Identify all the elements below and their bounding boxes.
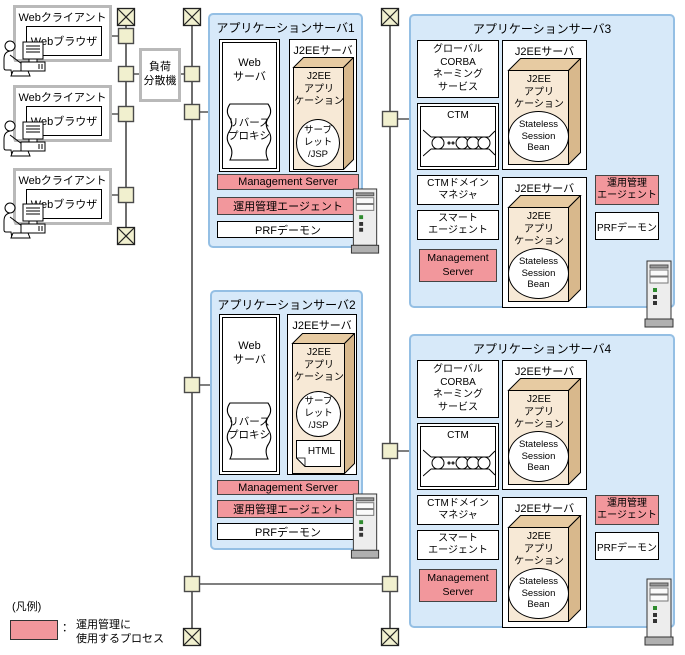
html-label: HTML: [302, 446, 341, 457]
ops-agent-box: 運用管理 エージェント: [595, 495, 659, 525]
html-document-icon: HTML: [296, 440, 341, 467]
j2ee-application-label: J2EE アプリ ケーション: [509, 394, 569, 432]
server-tower-icon: [350, 493, 382, 561]
web-client-label: Webクライアント: [16, 172, 109, 188]
global-corba-naming-box: グローバル CORBA ネーミング サービス: [417, 360, 499, 418]
stateless-session-bean-ellipse: Stateless Session Bean: [508, 568, 569, 619]
j2ee-server-box: J2EEサーバ J2EE アプリ ケーション Stateless Session…: [502, 177, 587, 308]
j2ee-application-label: J2EE アプリ ケーション: [294, 71, 344, 109]
web-server-label: Web サーバ: [223, 57, 276, 85]
server-tower-icon: [644, 577, 676, 649]
smart-agent-box: スマート エージェント: [417, 210, 499, 240]
j2ee-application-label: J2EE アプリ ケーション: [509, 211, 569, 249]
j2ee-server-box: J2EEサーバ J2EE アプリ ケーション サーブ レット /JSP: [289, 39, 357, 172]
server-tower-icon: [350, 188, 382, 256]
smart-agent-box: スマート エージェント: [417, 530, 499, 560]
ops-agent-bar: 運用管理エージェント: [217, 197, 359, 215]
j2ee-application-label: J2EE アプリ ケーション: [509, 74, 569, 112]
prf-daemon-box: PRFデーモン: [595, 532, 659, 560]
app-server-4-title: アプリケーションサーバ4: [411, 340, 673, 357]
management-server-bar: Management Server: [217, 174, 359, 190]
j2ee-server-label: J2EEサーバ: [503, 180, 586, 196]
j2ee-server-box: J2EEサーバ J2EE アプリ ケーション Stateless Session…: [502, 360, 587, 490]
app-server-4: アプリケーションサーバ4 グローバル CORBA ネーミング サービス CTM …: [409, 334, 675, 628]
architecture-diagram: Webクライアント Webブラウザ Webクライアント Webブラウザ Webク…: [0, 0, 685, 655]
reverse-proxy-plaque-shape: リバース プロキシ: [223, 402, 275, 460]
j2ee-application-3d-box: J2EE アプリ ケーション Stateless Session Bean: [507, 515, 582, 622]
ctm-domain-manager-box: CTMドメイン マネジャ: [417, 495, 499, 525]
j2ee-application-label: J2EE アプリ ケーション: [293, 347, 345, 385]
prf-daemon-bar: PRFデーモン: [217, 221, 359, 238]
j2ee-server-label: J2EEサーバ: [503, 43, 586, 59]
management-server-box: Management Server: [419, 569, 497, 602]
web-server-box: Web サーバ リバース プロキシ: [219, 314, 280, 475]
web-server-label: Web サーバ: [223, 340, 276, 368]
j2ee-server-label: J2EEサーバ: [503, 363, 586, 379]
ctm-box: CTM: [417, 103, 499, 170]
j2ee-server-label: J2EEサーバ: [503, 500, 586, 516]
global-corba-naming-box: グローバル CORBA ネーミング サービス: [417, 40, 499, 98]
j2ee-application-3d-box: J2EE アプリ ケーション サーブ レット /JSP HTML: [291, 333, 355, 474]
j2ee-server-box: J2EEサーバ J2EE アプリ ケーション Stateless Session…: [502, 497, 587, 628]
user-at-computer-icon: [1, 200, 49, 246]
servlet-jsp-circle: サーブ レット /JSP: [296, 119, 340, 167]
app-server-3: アプリケーションサーバ3 グローバル CORBA ネーミング サービス CTM …: [409, 14, 675, 308]
ctm-label: CTM: [421, 430, 495, 441]
ops-agent-bar: 運用管理エージェント: [217, 500, 359, 518]
load-balancer: 負荷 分散機: [139, 48, 181, 102]
ops-agent-box: 運用管理 エージェント: [595, 175, 659, 205]
ctm-label: CTM: [421, 110, 495, 121]
j2ee-server-box: J2EEサーバ J2EE アプリ ケーション サーブ レット /JSP HTML: [287, 314, 357, 475]
reverse-proxy-plaque-shape: リバース プロキシ: [223, 103, 275, 161]
app-server-2: アプリケーションサーバ2 Web サーバ リバース プロキシ J2EEサーバ J…: [210, 290, 363, 550]
reverse-proxy-label: リバース プロキシ: [223, 117, 275, 143]
j2ee-application-3d-box: J2EE アプリ ケーション Stateless Session Bean: [507, 378, 582, 485]
management-server-bar: Management Server: [217, 480, 359, 495]
ctm-queue-icon: [423, 447, 495, 479]
j2ee-server-label: J2EEサーバ: [288, 317, 356, 333]
stateless-session-bean-ellipse: Stateless Session Bean: [508, 111, 569, 162]
ctm-queue-icon: [423, 127, 495, 159]
j2ee-server-label: J2EEサーバ: [290, 42, 356, 58]
app-server-1: アプリケーションサーバ1 Web サーバ リバース プロキシ J2EEサーバ J…: [208, 13, 363, 248]
app-server-3-title: アプリケーションサーバ3: [411, 20, 673, 37]
j2ee-application-3d-box: J2EE アプリ ケーション Stateless Session Bean: [507, 195, 582, 302]
j2ee-application-label: J2EE アプリ ケーション: [509, 531, 569, 569]
management-server-box: Management Server: [419, 249, 497, 282]
j2ee-application-3d-box: J2EE アプリ ケーション サーブ レット /JSP: [292, 57, 354, 170]
ctm-box: CTM: [417, 423, 499, 490]
j2ee-application-3d-box: J2EE アプリ ケーション Stateless Session Bean: [507, 58, 582, 165]
prf-daemon-bar: PRFデーモン: [217, 523, 359, 540]
user-at-computer-icon: [1, 118, 49, 164]
stateless-session-bean-ellipse: Stateless Session Bean: [508, 431, 569, 482]
stateless-session-bean-ellipse: Stateless Session Bean: [508, 248, 569, 299]
app-server-1-title: アプリケーションサーバ1: [210, 19, 361, 36]
server-tower-icon: [644, 259, 676, 331]
prf-daemon-box: PRFデーモン: [595, 212, 659, 240]
ctm-domain-manager-box: CTMドメイン マネジャ: [417, 175, 499, 205]
reverse-proxy-label: リバース プロキシ: [223, 416, 275, 442]
app-server-2-title: アプリケーションサーバ2: [212, 296, 361, 313]
servlet-jsp-circle: サーブ レット /JSP: [296, 391, 341, 437]
web-client-label: Webクライアント: [16, 89, 109, 105]
web-server-box: Web サーバ リバース プロキシ: [219, 39, 280, 172]
user-at-computer-icon: [1, 38, 49, 84]
web-client-label: Webクライアント: [16, 9, 109, 25]
j2ee-server-box: J2EEサーバ J2EE アプリ ケーション Stateless Session…: [502, 40, 587, 170]
